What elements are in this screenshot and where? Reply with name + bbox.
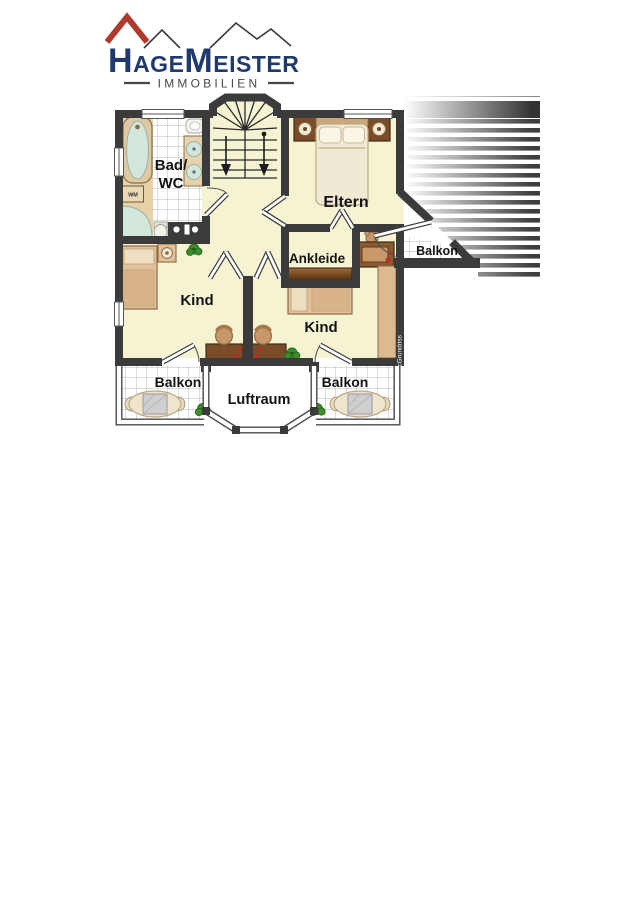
logo-roofline2-icon bbox=[210, 23, 291, 48]
bathtub-icon bbox=[123, 117, 152, 183]
logo-roofline-icon bbox=[144, 30, 180, 48]
room-label-balkon-right: Balkon bbox=[322, 374, 369, 390]
closet-icon bbox=[378, 266, 396, 358]
brand-wordmark: HAGEMEISTER bbox=[108, 42, 299, 80]
room-label-ankleide: Ankleide bbox=[289, 251, 346, 266]
washing-machine-icon: WM bbox=[123, 186, 144, 202]
brand-h: H bbox=[108, 42, 133, 80]
brand-age: AGE bbox=[133, 51, 184, 77]
sink-vanity-icon bbox=[184, 119, 204, 186]
room-label-bad-wc-2: WC bbox=[159, 175, 184, 192]
room-label-luftraum: Luftraum bbox=[228, 392, 291, 408]
floorplan-image: HAGEMEISTER IMMOBILIEN bbox=[0, 0, 636, 900]
logo: HAGEMEISTER IMMOBILIEN bbox=[107, 17, 299, 91]
page: HAGEMEISTER IMMOBILIEN bbox=[0, 0, 636, 900]
room-label-balkon-left: Balkon bbox=[155, 374, 202, 390]
room-label-kind-left: Kind bbox=[180, 292, 213, 309]
nightstand-icon bbox=[158, 244, 176, 262]
brand-eister: EISTER bbox=[213, 51, 299, 77]
room-label-balkon-top: Balkon bbox=[416, 244, 458, 258]
single-bed-left-icon bbox=[121, 246, 157, 309]
logo-red-roof-icon bbox=[107, 17, 147, 42]
light-panel-icon bbox=[168, 222, 202, 237]
brand-subtitle: IMMOBILIEN bbox=[158, 77, 261, 91]
brand-m: M bbox=[184, 42, 213, 80]
room-label-kind-right: Kind bbox=[304, 319, 337, 336]
room-label-eltern: Eltern bbox=[323, 194, 368, 211]
wardrobe-icon bbox=[286, 268, 352, 281]
washing-machine-label: WM bbox=[128, 193, 138, 199]
room-label-bad-wc-1: Bad/ bbox=[155, 157, 188, 174]
